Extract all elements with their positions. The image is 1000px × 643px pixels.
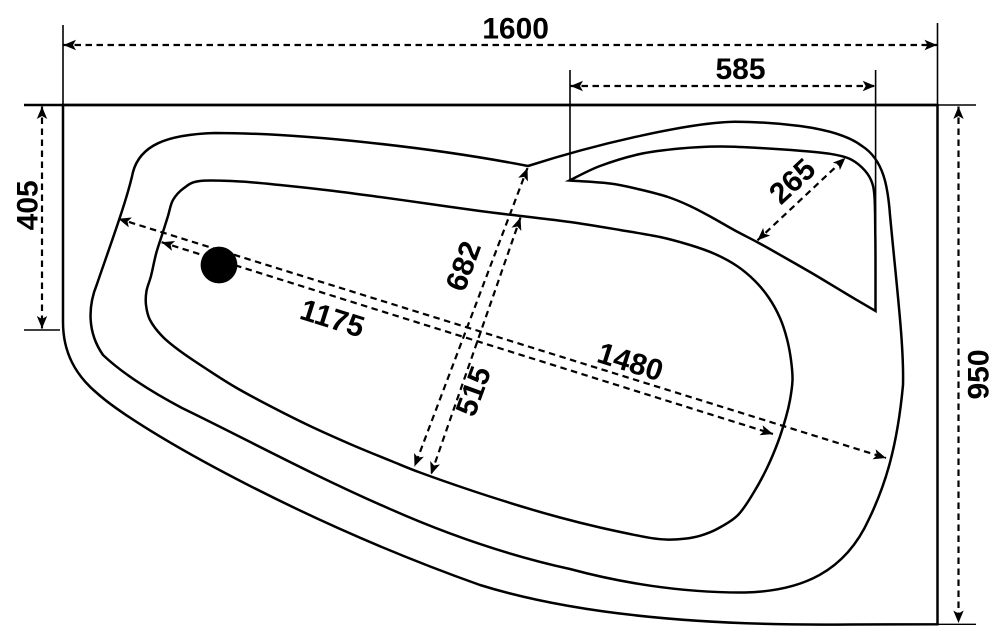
svg-text:405: 405: [11, 180, 44, 230]
svg-text:585: 585: [715, 53, 765, 86]
svg-text:950: 950: [963, 349, 996, 399]
svg-text:1600: 1600: [482, 12, 549, 45]
